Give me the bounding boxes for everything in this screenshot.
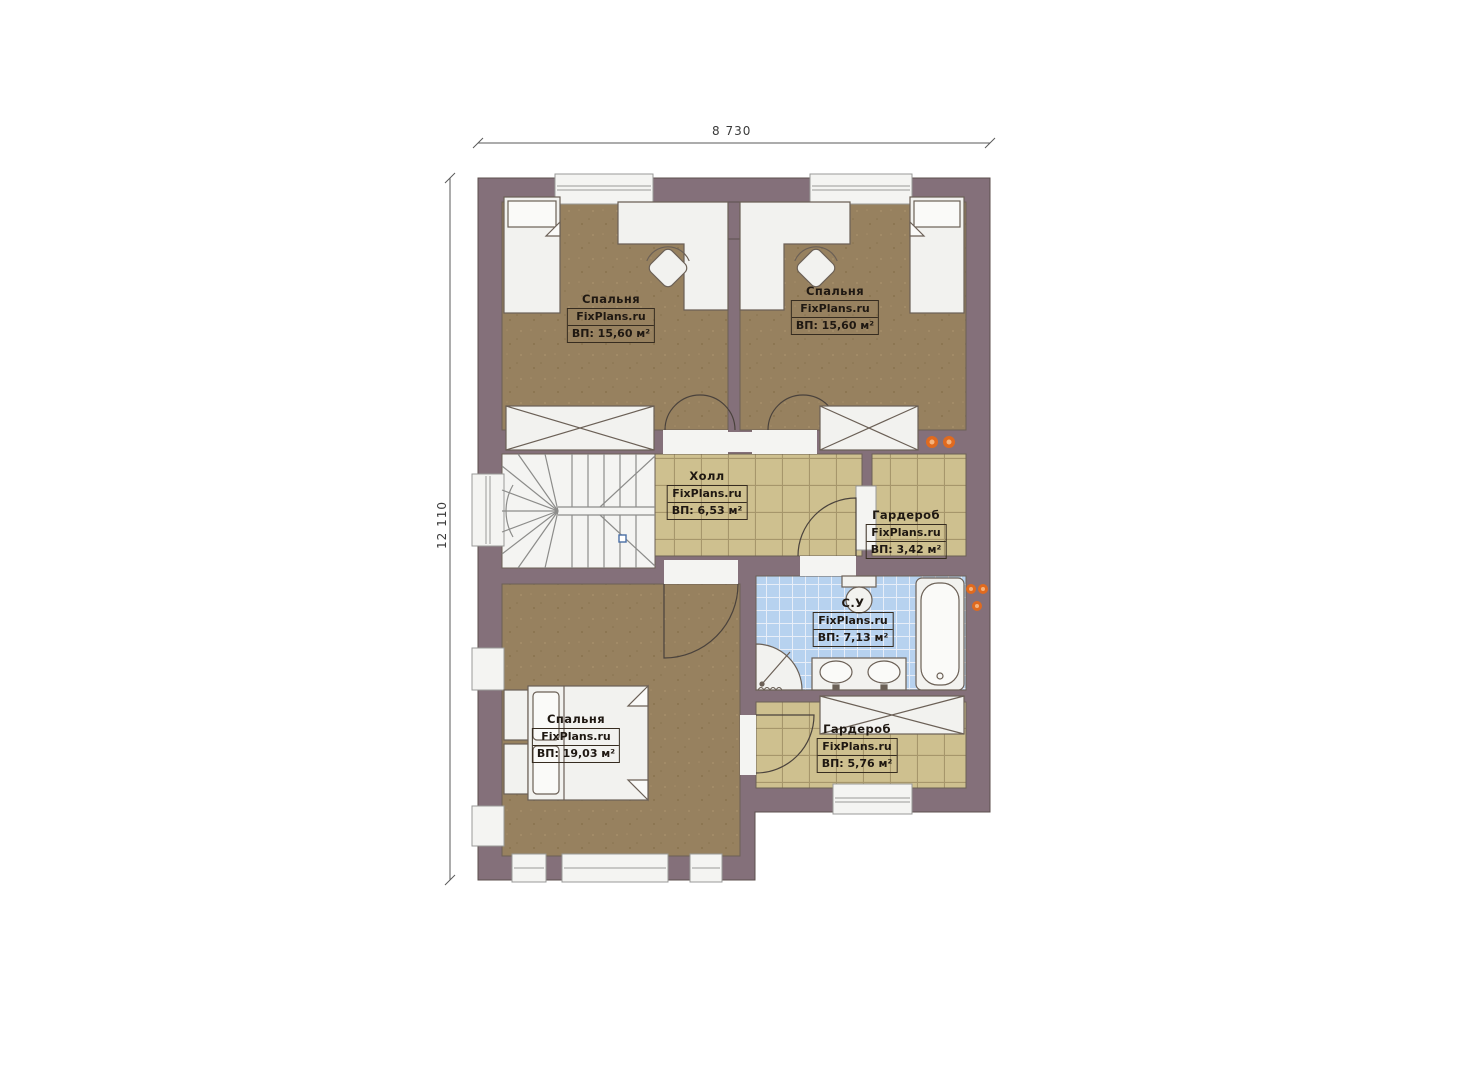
label-hall: Холл FixPlans.ru ВП: 6,53 м²	[667, 469, 748, 520]
room-watermark: FixPlans.ru	[568, 309, 654, 325]
label-wardrobe-upper: Гардероб FixPlans.ru ВП: 3,42 м²	[866, 508, 947, 559]
label-bedroom-bottom: Спальня FixPlans.ru ВП: 19,03 м²	[532, 712, 620, 763]
room-watermark: FixPlans.ru	[792, 301, 878, 317]
nightstand-top	[504, 690, 528, 740]
label-bedroom-top-right: Спальня FixPlans.ru ВП: 15,60 м²	[791, 284, 879, 335]
room-watermark: FixPlans.ru	[668, 486, 747, 502]
room-name: Гардероб	[866, 508, 947, 522]
window-stairs	[472, 474, 504, 546]
room-area: ВП: 15,60 м²	[792, 317, 878, 334]
floorplan-canvas	[0, 0, 1474, 1080]
room-watermark: FixPlans.ru	[818, 739, 897, 755]
window-top-right	[810, 174, 912, 204]
room-watermark: FixPlans.ru	[867, 525, 946, 541]
room-name: Спальня	[532, 712, 620, 726]
room-area: ВП: 5,76 м²	[818, 755, 897, 772]
room-area: ВП: 6,53 м²	[668, 502, 747, 519]
label-wardrobe-lower: Гардероб FixPlans.ru ВП: 5,76 м²	[817, 722, 898, 773]
vanity-double-sink	[812, 658, 906, 690]
room-area: ВП: 19,03 м²	[533, 745, 619, 762]
floorplan-page: 8 730 12 110 Спальня FixPlans.ru ВП: 15,…	[0, 0, 1474, 1080]
nightstand-bottom	[504, 744, 528, 794]
label-bathroom: С.У FixPlans.ru ВП: 7,13 м²	[813, 596, 894, 647]
room-name: Холл	[667, 469, 748, 483]
window-bedroom-bottom-left-2	[472, 806, 504, 846]
room-watermark: FixPlans.ru	[533, 729, 619, 745]
window-wardrobe-lower	[833, 784, 912, 814]
stairs-marker	[619, 535, 626, 542]
room-name: С.У	[813, 596, 894, 610]
bathtub	[916, 578, 964, 690]
dimension-width: 8 730	[712, 124, 751, 138]
label-bedroom-top-left: Спальня FixPlans.ru ВП: 15,60 м²	[567, 292, 655, 343]
room-name: Гардероб	[817, 722, 898, 736]
room-name: Спальня	[791, 284, 879, 298]
room-name: Спальня	[567, 292, 655, 306]
wardrobe-cabinet-top-right	[820, 406, 918, 450]
wardrobe-cabinet-top-left	[506, 406, 654, 450]
window-bedroom-bottom-left-1	[472, 648, 504, 690]
room-watermark: FixPlans.ru	[814, 613, 893, 629]
dimension-height: 12 110	[435, 501, 449, 549]
room-area: ВП: 15,60 м²	[568, 325, 654, 342]
room-area: ВП: 7,13 м²	[814, 629, 893, 646]
window-top-left	[555, 174, 653, 204]
room-area: ВП: 3,42 м²	[867, 541, 946, 558]
